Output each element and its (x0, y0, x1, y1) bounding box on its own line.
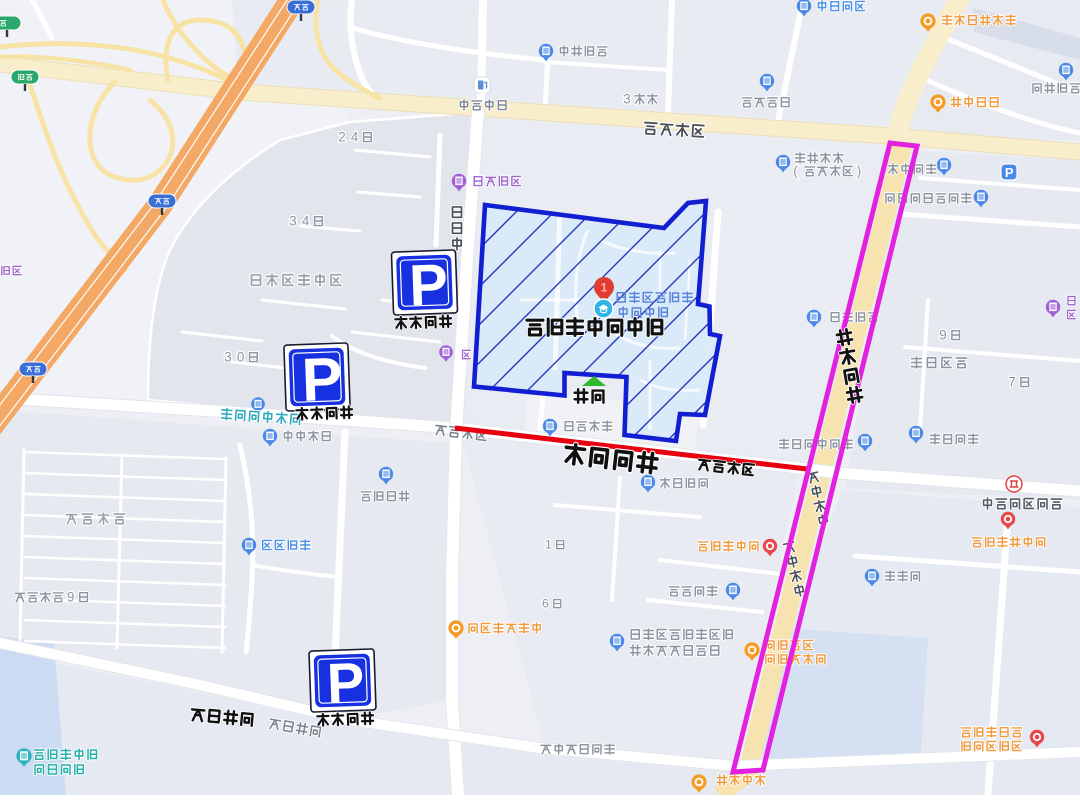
svg-text:1: 1 (601, 281, 608, 295)
svg-text:P: P (301, 345, 344, 414)
svg-text:3: 3 (289, 214, 296, 229)
svg-text:): ) (857, 164, 861, 179)
svg-text:4: 4 (302, 214, 310, 229)
svg-text:P: P (1005, 165, 1014, 180)
svg-text:1: 1 (545, 538, 552, 552)
svg-text:(: ( (793, 164, 798, 179)
svg-text:4: 4 (351, 130, 359, 145)
svg-text:7: 7 (1008, 375, 1015, 390)
svg-text:3: 3 (224, 350, 231, 365)
svg-text:P: P (326, 650, 366, 714)
svg-text:3: 3 (623, 92, 630, 107)
svg-text:P: P (408, 252, 449, 318)
svg-text:9: 9 (67, 590, 74, 605)
svg-text:2: 2 (338, 130, 345, 145)
svg-text:0: 0 (237, 350, 244, 365)
svg-text:6: 6 (542, 597, 549, 611)
svg-text:9: 9 (939, 328, 946, 343)
